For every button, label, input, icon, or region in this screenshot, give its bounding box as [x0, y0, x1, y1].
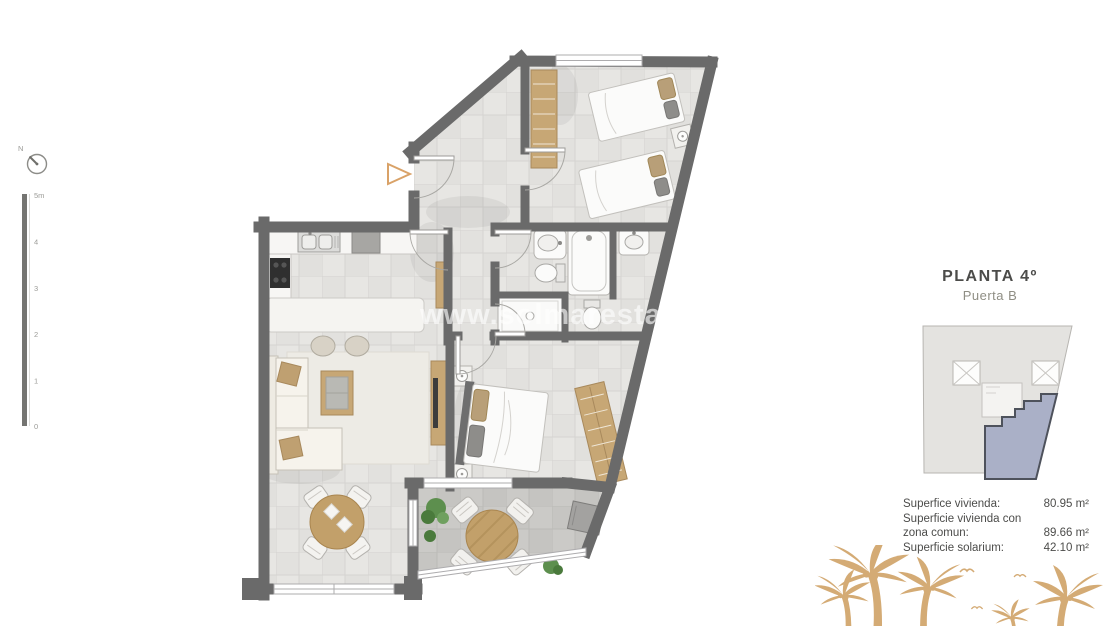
- tv-cabinet: [431, 361, 447, 445]
- scale-label-5m: 5m: [34, 191, 44, 200]
- area-value: 89.66 m²: [1044, 526, 1089, 540]
- area-row: Superfice vivienda: 80.95 m²: [903, 497, 1089, 511]
- stool: [311, 336, 335, 356]
- scale-bar-rule: [22, 194, 27, 426]
- entry-arrow-icon: [388, 164, 410, 184]
- bird-icon: [960, 569, 974, 572]
- palm-icon: [829, 545, 910, 626]
- fridge: [352, 229, 380, 253]
- key-plan: [920, 325, 1076, 483]
- plan-subtitle: Puerta B: [885, 288, 1095, 303]
- watermark: www.solmarestates.co: [419, 299, 735, 331]
- toilet: [535, 264, 565, 282]
- dining-table: [310, 495, 364, 549]
- bathtub: [568, 227, 610, 295]
- scale-bar: 5m 4 3 2 1 0: [12, 186, 58, 434]
- scale-label-4: 4: [34, 237, 38, 246]
- palm-icon: [991, 599, 1029, 626]
- cooktop: [270, 258, 290, 288]
- floor-plan: www.solmarestates.co: [225, 25, 735, 626]
- floorplan-page: { "panel": { "title": "PLANTA 4º", "subt…: [0, 0, 1110, 626]
- area-label: Superfice vivienda:: [903, 497, 1000, 511]
- area-label: Superficie vivienda con zona comun:: [903, 512, 1029, 540]
- bird-icon: [1014, 575, 1026, 577]
- area-row: Superficie vivienda con zona comun: 89.6…: [903, 512, 1089, 540]
- double-bed: [455, 381, 549, 475]
- dining-set: [301, 484, 372, 561]
- coffee-table: [321, 371, 353, 415]
- bird-icon: [971, 607, 982, 609]
- scale-label-3: 3: [34, 284, 38, 293]
- kitchen-island: [266, 298, 424, 332]
- scale-label-1: 1: [34, 377, 38, 386]
- scale-label-0: 0: [34, 422, 38, 431]
- north-compass-icon: N: [12, 138, 56, 182]
- compass-north-label: N: [18, 144, 23, 153]
- plan-title: PLANTA 4º: [885, 268, 1095, 286]
- washbasin: [619, 229, 649, 255]
- scale-label-2: 2: [34, 330, 38, 339]
- palm-icon: [1033, 565, 1103, 626]
- stool: [345, 336, 369, 356]
- terrace-table: [466, 510, 518, 562]
- area-value: 80.95 m²: [1044, 497, 1089, 511]
- palm-trees-decoration: [815, 545, 1110, 626]
- wardrobe: [531, 70, 557, 168]
- palm-icon: [898, 557, 965, 626]
